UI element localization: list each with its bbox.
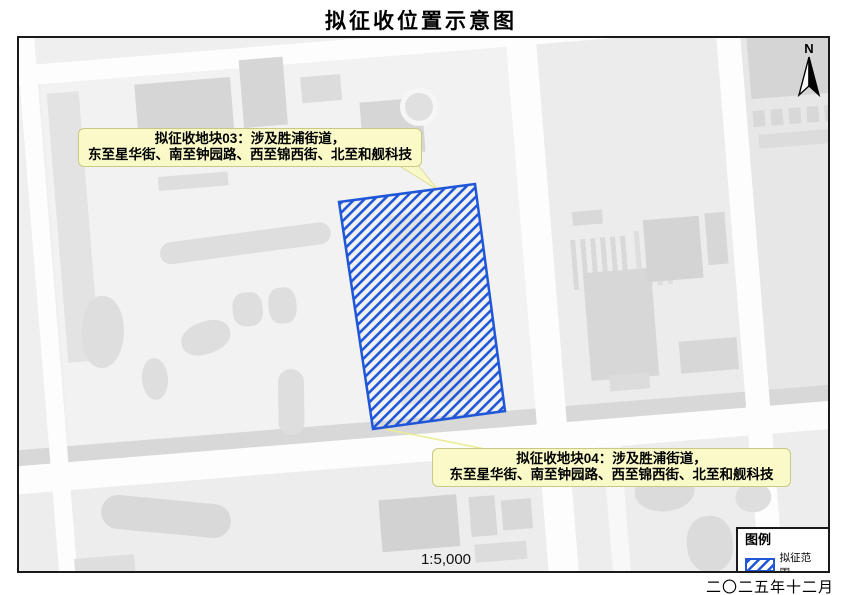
date-label: 二〇二五年十二月 (700, 576, 840, 595)
north-label: N (794, 42, 824, 56)
north-arrow: N (794, 42, 824, 103)
callout-line-1: 拟征收地块04：涉及胜浦街道， (439, 451, 784, 467)
scale-text: 1:5,000 (386, 551, 506, 568)
hatch-swatch-icon (745, 558, 775, 572)
north-arrow-icon (795, 56, 823, 98)
acquisition-area-polygon (339, 184, 505, 429)
callout-block-04: 拟征收地块04：涉及胜浦街道， 东至星华街、南至钟园路、西至锦西街、北至和舰科技 (432, 448, 791, 487)
legend-item: 拟征范围 (745, 550, 821, 573)
map-building (83, 572, 122, 573)
callout-leader-03 (398, 165, 438, 190)
legend: 图例 拟征范围 (736, 527, 830, 573)
callout-line-1: 拟征收地块03：涉及胜浦街道， (85, 131, 415, 147)
callout-line-2: 东至星华街、南至钟园路、西至锦西街、北至和舰科技 (439, 467, 784, 483)
legend-title: 图例 (745, 532, 821, 547)
map-frame: 拟征收地块03：涉及胜浦街道， 东至星华街、南至钟园路、西至锦西街、北至和舰科技… (17, 36, 830, 573)
legend-item-label: 拟征范围 (780, 550, 821, 573)
acquisition-overlay (19, 38, 828, 571)
page-title: 拟征收位置示意图 (0, 5, 842, 35)
callout-line-2: 东至星华街、南至钟园路、西至锦西街、北至和舰科技 (85, 147, 415, 163)
callout-block-03: 拟征收地块03：涉及胜浦街道， 东至星华街、南至钟园路、西至锦西街、北至和舰科技 (78, 128, 422, 167)
page: 拟征收位置示意图 (0, 0, 842, 595)
